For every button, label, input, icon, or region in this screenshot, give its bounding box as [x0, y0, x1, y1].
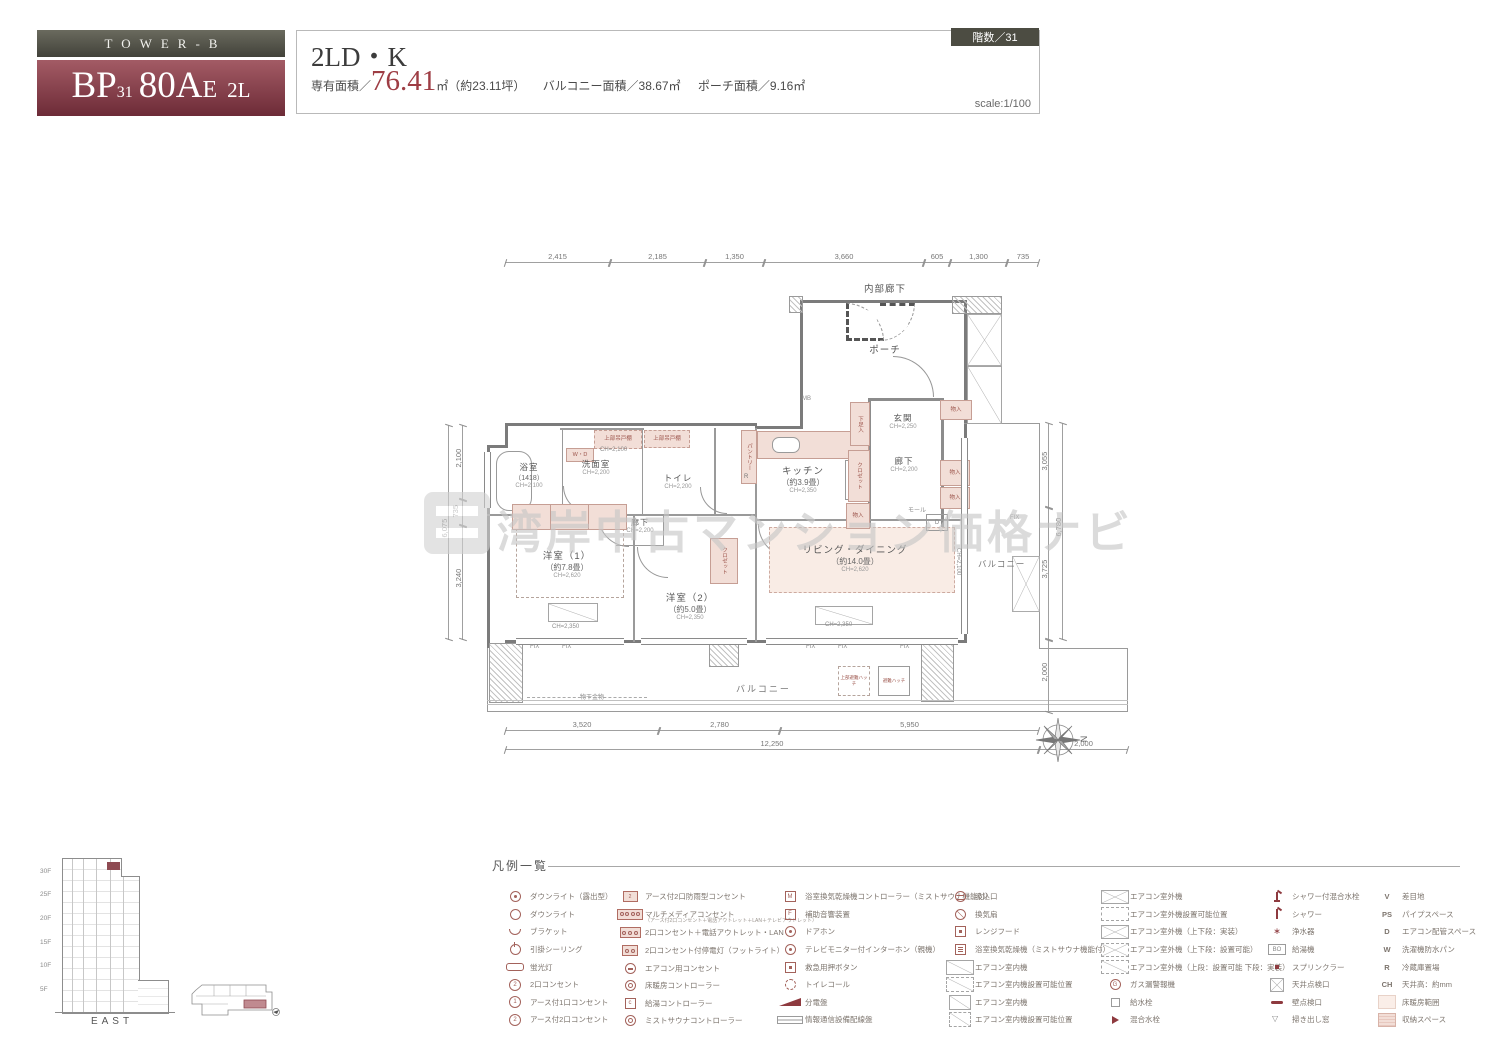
legend-item: エアコン室内機: [945, 958, 1110, 976]
unit-number-bp: BP: [72, 64, 117, 107]
living-ch2: CH=2,350: [825, 622, 852, 628]
legend-symbol-ltr: D: [1384, 927, 1389, 936]
legend-item: Dエアコン配管スペース: [1372, 923, 1476, 941]
legend-symbol-wedge: [779, 998, 801, 1006]
legend-label: レンジフード: [975, 926, 1020, 937]
area-line: 専有面積／76.41㎡（約23.11坪） バルコニー面積／38.67㎡ ポーチ面…: [311, 77, 805, 94]
legend-symbol-sq: [1111, 998, 1120, 1007]
dimension: 3,520: [505, 730, 659, 731]
legend-symbol-ltr: CH: [1382, 980, 1393, 989]
legend-symbol-cd: [785, 926, 796, 937]
legend-symbol-xb2: [1101, 925, 1129, 939]
legend-symbol-st: [1378, 1013, 1396, 1027]
legend-symbol-cc: [625, 980, 636, 991]
unit-number-e: E: [203, 77, 218, 104]
legend-item: エアコン室内機設置可能位置: [945, 976, 1110, 994]
legend-item: 2アース付2口コンセント: [500, 1011, 613, 1029]
bath-label: 浴室（1418）CH=2,100: [498, 461, 560, 489]
dimension: 2,000: [1048, 640, 1049, 713]
legend-item: W洗濯機防水パン: [1372, 941, 1476, 959]
legend-label: パイプスペース: [1402, 909, 1454, 920]
legend-item: BO給湯機: [1262, 941, 1360, 959]
legend-symbol-tri: [1112, 1016, 1119, 1024]
unit-info-box: 2LD・K 専有面積／76.41㎡（約23.11坪） バルコニー面積／38.67…: [296, 30, 1040, 114]
legend-symbol-diagd: [946, 977, 974, 992]
legend-label: エアコン室外機（上下段：実装）: [1130, 926, 1243, 937]
legend-symbol-csl: [955, 891, 966, 902]
dimension: 605: [924, 262, 950, 263]
legend-label: 床暖房コントローラー: [645, 980, 720, 991]
legend-item: ブラケット: [500, 923, 613, 941]
legend-symbol-xb: [1101, 890, 1129, 904]
legend-label: 情報通信設備配線盤: [805, 1014, 873, 1025]
watermark-logo: [424, 492, 490, 554]
legend-label: 補助音響装置: [805, 909, 850, 920]
legend-label: エアコン室外機設置可能位置: [1130, 909, 1228, 920]
legend-label: 天井点検口: [1292, 979, 1330, 990]
legend-label: 引掛シーリング: [530, 944, 583, 955]
legend-symbol-bxd: [785, 962, 796, 973]
legend-symbol-m3: [620, 927, 641, 938]
toilet-label: トイレCH=2,200: [652, 472, 704, 490]
legend-label: シャワー付混合水栓: [1292, 891, 1360, 902]
legend-label: 2口コンセント: [530, 979, 579, 990]
floor-label: 30F: [40, 868, 51, 875]
legend-symbol-bo: BO: [1268, 944, 1286, 955]
legend-label: 吸込口: [975, 891, 998, 902]
unit-number-2l: 2L: [227, 78, 250, 103]
legend-symbol-xbg: [1270, 978, 1284, 992]
corridor-label: 内部廊下: [830, 281, 940, 295]
hall-label: 廊下CH=2,200: [878, 455, 930, 473]
legend-symbol-vtri: [1272, 1016, 1282, 1023]
floor-label: 5F: [40, 986, 48, 993]
legend-item: 1アース付1口コンセント: [500, 994, 613, 1012]
east-label: EAST: [62, 1016, 162, 1027]
legend-column: ダウンライト（露出型）ダウンライトブラケット引掛シーリング蛍光灯22口コンセント…: [500, 888, 613, 1029]
legend-item: 浴室換気乾燥機（ミストサウナ機能付）: [945, 941, 1110, 959]
legend-column: 吸込口換気扇レンジフード浴室換気乾燥機（ミストサウナ機能付）エアコン室内機エアコ…: [945, 888, 1110, 1029]
legend-symbol-diag: [946, 960, 974, 975]
legend-symbol-shw2: [1276, 909, 1278, 919]
legend-symbol-ltr: PS: [1382, 910, 1392, 919]
dimension: 2,100: [462, 425, 463, 500]
legend-label: 2口コンセント＋電話アウトレット・LAN: [645, 927, 784, 938]
elevation-annex: [138, 980, 169, 1014]
legend-label: ダウンライト: [530, 909, 575, 920]
legend-symbol-xb2d: [1101, 943, 1129, 957]
legend-column: V差目地PSパイプスペースDエアコン配管スペースW洗濯機防水パンR冷蔵庫置場CH…: [1372, 888, 1476, 1029]
legend-label: エアコン配管スペース: [1402, 926, 1476, 937]
kitchen-sink: [772, 437, 800, 453]
legend-symbol-cc: [625, 1015, 636, 1026]
legend-symbol-ltr: R: [1384, 963, 1389, 972]
legend-item: ダウンライト（露出型）: [500, 888, 613, 906]
legend-label: 洗濯機防水パン: [1402, 944, 1455, 955]
legend-label: エアコン室内機: [975, 962, 1028, 973]
legend-item: R冷蔵庫置場: [1372, 958, 1476, 976]
legend-item: V差目地: [1372, 888, 1476, 906]
compass-rose: N: [1032, 712, 1088, 768]
legend-symbol-ce: 2: [509, 1014, 521, 1026]
legend-symbol-star: ∗: [1273, 927, 1281, 936]
legend-label: ミストサウナコントローラー: [645, 1015, 743, 1026]
legend-item: 引掛シーリング: [500, 941, 613, 959]
legend-symbol-cnum: 2: [509, 979, 521, 991]
legend-label: テレビモニター付インターホン（親機）: [805, 944, 940, 955]
unit-number-plate: BP 31 80A E 2L: [37, 60, 285, 116]
legend-symbol-ltr: V: [1384, 892, 1389, 901]
legend-item: 床暖房範囲: [1372, 994, 1476, 1012]
legend-label: スプリンクラー: [1292, 962, 1345, 973]
dimension: 2,185: [610, 262, 705, 263]
dimension: 12,250: [505, 749, 1039, 750]
legend-label: アース付2口コンセント: [530, 1014, 608, 1025]
legend-label: 給水栓: [1130, 997, 1153, 1008]
hanging-cabinet: 上部吊戸棚: [644, 430, 690, 448]
dimension: 735: [1007, 262, 1039, 263]
legend-label: 浄水器: [1292, 926, 1315, 937]
dimension: 1,300: [950, 262, 1007, 263]
legend-label: 蛍光灯: [530, 962, 553, 973]
legend-symbol-m4: [617, 909, 643, 920]
legend-label: 換気扇: [975, 909, 998, 920]
unit-number-80a: 80A: [139, 64, 203, 107]
key-plan: [188, 984, 280, 1018]
balcony-bottom-label: バルコニー: [736, 682, 791, 695]
legend-title: 凡例一覧: [492, 857, 548, 874]
legend-label: ブラケット: [530, 926, 568, 937]
shoe-cabinet: 下足入: [850, 402, 870, 446]
watermark-text: 湾岸中古マンション価格ナビ: [497, 496, 1134, 561]
legend-item: 壁点検口: [1262, 994, 1360, 1012]
legend-label: エアコン用コンセント: [645, 963, 720, 974]
legend-symbol-bxd: [955, 926, 966, 937]
wash-ch2: CH=2,100: [600, 447, 627, 453]
legend-item: CH天井高：約mm: [1372, 976, 1476, 994]
floor-label: 15F: [40, 939, 51, 946]
legend-item: スプリンクラー: [1262, 958, 1360, 976]
area-tsubo: （約23.11坪）: [448, 79, 525, 93]
legend-symbol-m2: [622, 945, 638, 956]
ground-line: [55, 1012, 175, 1013]
floor-label: 10F: [40, 962, 51, 969]
legend-symbol-cd: [510, 891, 521, 902]
balcony-area: バルコニー面積／38.67㎡: [543, 79, 681, 93]
legend-item: エアコン室内機設置可能位置: [945, 1011, 1110, 1029]
legend-label: 給湯コントローラー: [645, 998, 713, 1009]
legend-item: 蛍光灯: [500, 958, 613, 976]
legend-label: 2口コンセント付停電灯（フットライト）: [645, 945, 784, 956]
legend-item: 吸込口: [945, 888, 1110, 906]
legend-symbol-pb: 2: [623, 891, 638, 902]
legend-symbol-ac: [625, 963, 636, 974]
legend-label: 収納スペース: [1402, 1014, 1446, 1025]
dimension: 3,660: [764, 262, 924, 263]
legend-label: エアコン室外機: [1130, 891, 1183, 902]
legend-symbol-c2: [510, 944, 521, 955]
floor-label: 25F: [40, 891, 51, 898]
legend-label: 給湯機: [1292, 944, 1315, 955]
legend-item: PSパイプスペース: [1372, 906, 1476, 924]
legend-item: シャワー付混合水栓: [1262, 888, 1360, 906]
tower-name-bar: TOWER-B: [37, 30, 285, 57]
hatch: 避難ハッチ: [878, 666, 910, 696]
legend-symbol-xbd: [1101, 907, 1129, 921]
porch-label: ポーチ: [840, 342, 930, 356]
tower-setback: [121, 858, 140, 877]
legend-label: エアコン室内機: [975, 997, 1028, 1008]
legend-symbol-cdash: [785, 979, 796, 990]
legend-symbol-half: [509, 929, 521, 935]
legend-symbol-cx: [955, 909, 966, 920]
compass-n-label: N: [1078, 736, 1088, 743]
kitchen-label: キッチン（約3.9畳）CH=2,350: [760, 463, 846, 494]
scale-note: scale:1/100: [975, 98, 1031, 110]
dimension: 5,950: [780, 730, 1039, 731]
genkan-label: 玄関CH=2,250: [875, 412, 931, 430]
legend-label: 混合水栓: [1130, 1014, 1160, 1025]
elevation-tower: [62, 858, 140, 1014]
legend-label: 壁点検口: [1292, 997, 1322, 1008]
legend-label: ガス漏警報機: [1130, 979, 1175, 990]
legend-item: ∗浄水器: [1262, 923, 1360, 941]
west2-label: 洋室（2）（約5.0畳）CH=2,350: [640, 590, 740, 621]
legend-label: 掃き出し窓: [1292, 1014, 1330, 1025]
legend-item: エアコン室内機: [945, 994, 1110, 1012]
hatch-upper: 上部避難ハッチ: [838, 666, 870, 696]
area-unit: ㎡: [436, 79, 448, 93]
floor-badge: 階数／31: [951, 28, 1039, 46]
west1-ch2: CH=2,350: [552, 624, 579, 630]
legend-label: アース付1口コンセント: [530, 997, 608, 1008]
legend-label: 床暖房範囲: [1402, 997, 1440, 1008]
legend-item: 22口コンセント: [500, 976, 613, 994]
legend-symbol-fluo: [506, 963, 524, 971]
drying-line: [527, 697, 647, 698]
floor-label: 20F: [40, 915, 51, 922]
legend-symbol-dot: [1275, 965, 1279, 969]
wash-label: 洗面室CH=2,200: [566, 458, 626, 476]
unit-number-31: 31: [117, 84, 133, 102]
legend-label: 分電盤: [805, 997, 828, 1008]
legend-symbol-cd: [785, 944, 796, 955]
legend-label: 救急用押ボタン: [805, 962, 858, 973]
legend-item: 天井点検口: [1262, 976, 1360, 994]
fridge-space: R: [744, 474, 748, 480]
legend-label: シャワー: [1292, 909, 1322, 920]
area-value: 76.41: [371, 65, 436, 97]
legend-label: エアコン室内機設置可能位置: [975, 979, 1073, 990]
legend-item: 掃き出し窓: [1262, 1011, 1360, 1029]
legend-item: 換気扇: [945, 906, 1110, 924]
area-label: 専有面積／: [311, 79, 371, 93]
legend-label: ダウンライト（露出型）: [530, 891, 613, 902]
legend-symbol-bx: F: [785, 909, 796, 920]
legend-label: アース付2口防雨型コンセント: [645, 891, 746, 902]
legend-label: トイレコール: [805, 979, 850, 990]
legend-label: エアコン室外機（上下段：設置可能）: [1130, 944, 1258, 955]
legend-symbol-dash: [1271, 1001, 1283, 1004]
legend-item: ダウンライト: [500, 906, 613, 924]
floor-plan-page: TOWER-B BP 31 80A E 2L 2LD・K 専有面積／76.41㎡…: [0, 0, 1500, 1061]
legend-symbol-shw: [1276, 892, 1278, 902]
legend-symbol-bxc: c: [625, 998, 636, 1009]
legend-item: シャワー: [1262, 906, 1360, 924]
legend-label: 天井高：約mm: [1402, 979, 1452, 990]
legend-symbol-bar: [777, 1016, 803, 1024]
legend-label: 浴室換気乾燥機（ミストサウナ機能付）: [975, 944, 1110, 955]
porch-area: ポーチ面積／9.16㎡: [698, 79, 805, 93]
legend-symbol-diag2d: [949, 1012, 971, 1027]
legend-symbol-bx: M: [785, 891, 796, 902]
dimension: 1,350: [705, 262, 764, 263]
highlighted-unit: [107, 862, 120, 870]
mb-label: MB: [802, 396, 811, 402]
legend-label: 冷蔵庫置場: [1402, 962, 1440, 973]
legend-symbol-cg: G: [1110, 979, 1121, 990]
legend-label: ドアホン: [805, 926, 835, 937]
dimension: 2,780: [659, 730, 780, 731]
legend-item: 収納スペース: [1372, 1011, 1476, 1029]
legend-symbol-c: [510, 909, 521, 920]
legend-symbol-diag2: [949, 995, 971, 1010]
legend-symbol-xbh: [1101, 960, 1129, 974]
legend-symbol-fh: [1378, 995, 1396, 1009]
legend-symbol-ltr: W: [1383, 945, 1390, 954]
legend-label: エアコン室内機設置可能位置: [975, 1014, 1073, 1025]
legend-item: レンジフード: [945, 923, 1110, 941]
storage: 物入: [940, 400, 972, 420]
dimension: 2,415: [505, 262, 610, 263]
legend-column: シャワー付混合水栓シャワー∗浄水器BO給湯機スプリンクラー天井点検口壁点検口掃き…: [1262, 888, 1360, 1029]
legend-label: 差目地: [1402, 891, 1425, 902]
legend-symbol-ce: 1: [509, 996, 521, 1008]
closet: クロゼット: [848, 450, 870, 502]
legend-rule: [548, 866, 1460, 867]
legend-symbol-bxm: [955, 944, 966, 955]
